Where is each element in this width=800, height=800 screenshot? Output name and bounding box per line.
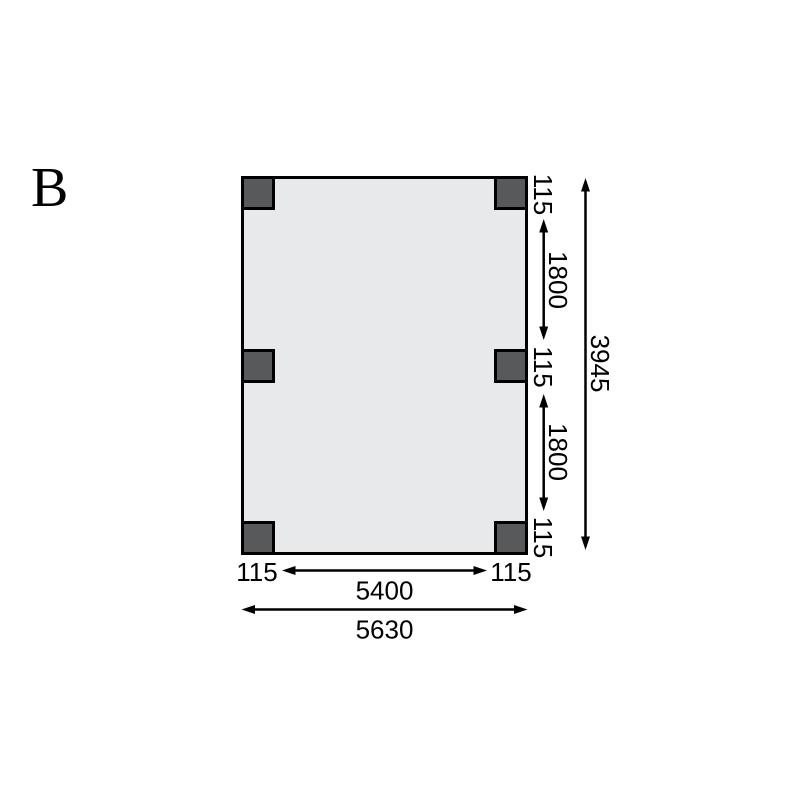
svg-text:1800: 1800 [543, 423, 573, 481]
svg-text:3945: 3945 [585, 335, 615, 393]
svg-text:1800: 1800 [543, 251, 573, 309]
svg-text:115: 115 [528, 346, 558, 387]
svg-text:5400: 5400 [356, 576, 414, 606]
svg-text:115: 115 [528, 174, 558, 215]
svg-text:115: 115 [490, 557, 531, 587]
svg-text:115: 115 [528, 517, 558, 558]
svg-text:5630: 5630 [356, 615, 414, 645]
svg-text:115: 115 [236, 557, 277, 587]
svg-text:B: B [31, 157, 68, 219]
